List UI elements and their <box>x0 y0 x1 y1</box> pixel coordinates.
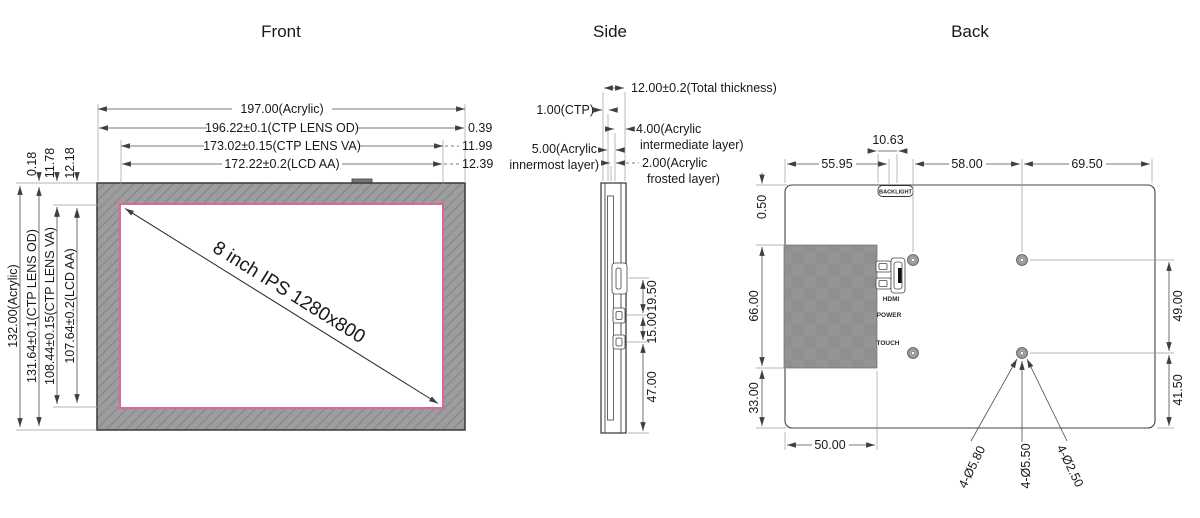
dim-innermost-line1: 5.00(Acrylic <box>532 142 597 156</box>
usb-touch-slot <box>616 338 622 346</box>
dim-width-ctp-va: 173.02±0.15(CTP LENS VA) <box>203 139 361 153</box>
dim-board-bottom: 33.00 <box>747 382 761 413</box>
inner-panel-layer <box>608 196 614 420</box>
offset-right-1: 0.39 <box>468 121 492 135</box>
back-left-dimensions: 0.50 66.00 33.00 <box>747 173 788 428</box>
back-view-title: Back <box>951 22 989 41</box>
dim-top-right: 69.50 <box>1071 157 1102 171</box>
dim-height-acrylic: 132.00(Acrylic) <box>6 264 20 347</box>
dim-height-ctp-od: 131.64±0.1(CTP LENS OD) <box>25 229 39 383</box>
offset-right-2: 11.99 <box>462 139 492 153</box>
front-left-dimensions: 132.00(Acrylic) 131.64±0.1(CTP LENS OD) … <box>6 147 77 427</box>
offset-top-3: 12.18 <box>63 147 77 178</box>
dim-frosted-line2: frosted layer) <box>647 172 720 186</box>
screw-hole-bottom-left <box>908 348 919 359</box>
dim-lip: 0.50 <box>755 195 769 219</box>
side-thickness-dimensions: 12.00±0.2(Total thickness) 1.00(CTP) 4.0… <box>509 81 776 186</box>
dim-intermediate-line2: intermediate layer) <box>640 138 744 152</box>
front-top-dimensions: 197.00(Acrylic) 196.22±0.1(CTP LENS OD) … <box>98 102 493 171</box>
front-view-title: Front <box>261 22 301 41</box>
technical-drawing-page: Front 8 inch IPS 1280x800 <box>0 0 1200 518</box>
dim-usb-bottom: 47.00 <box>645 371 659 402</box>
dim-frosted-line1: 2.00(Acrylic <box>642 156 707 170</box>
screw-hole-inner <box>1020 351 1023 354</box>
dim-top-mid: 58.00 <box>951 157 982 171</box>
screw-hole-bottom-right <box>1017 348 1028 359</box>
screw-hole-top-right <box>1017 255 1028 266</box>
back-view: Back BACKLIGHT HDMI POWER TOUCH <box>747 22 1185 490</box>
dim-hole-v1: 49.00 <box>1171 290 1185 321</box>
side-view: Side 12.00±0.2(Total thickness) 1.00(CTP… <box>509 22 776 433</box>
side-port-dimensions: 19.50 15.00 47.00 <box>627 278 659 433</box>
dim-board-width: 50.00 <box>814 438 845 452</box>
offset-right-3: 12.39 <box>462 157 493 171</box>
dim-width-lcd-aa: 172.22±0.2(LCD AA) <box>224 157 339 171</box>
dim-backlight-width: 10.63 <box>872 133 903 147</box>
port-label-power: POWER <box>877 312 902 319</box>
screw-hole-inner <box>911 351 914 354</box>
offset-top-1: 0.18 <box>25 152 39 176</box>
dim-ctp: 1.00(CTP) <box>536 103 594 117</box>
usb-power-port-slot <box>879 264 887 270</box>
dim-total-thickness: 12.00±0.2(Total thickness) <box>631 81 777 95</box>
screw-hole-inner <box>1020 258 1023 261</box>
front-view: Front 8 inch IPS 1280x800 <box>6 22 493 430</box>
driver-board <box>784 245 877 368</box>
hdmi-pin-strip <box>898 268 902 283</box>
backlight-label: BACKLIGHT <box>879 190 913 196</box>
dim-hdmi-offset: 19.50 <box>645 280 659 311</box>
dim-intermediate-line1: 4.00(Acrylic <box>636 122 701 136</box>
port-label-hdmi: HDMI <box>883 296 900 303</box>
lcd-dimension-drawing: Front 8 inch IPS 1280x800 <box>0 0 1200 518</box>
callout-mid-diameter: 4-Ø5.50 <box>1019 443 1033 488</box>
usb-power-slot <box>616 312 622 320</box>
hdmi-port-slot <box>616 268 621 289</box>
screw-hole-top-left <box>908 255 919 266</box>
dim-width-ctp-od: 196.22±0.1(CTP LENS OD) <box>205 121 359 135</box>
dim-top-left: 55.95 <box>821 157 852 171</box>
offset-top-2: 11.78 <box>43 148 57 178</box>
dim-usb-gap: 15.00 <box>645 312 659 343</box>
dim-hole-v2: 41.50 <box>1171 374 1185 405</box>
dim-board-height: 66.00 <box>747 290 761 321</box>
dim-height-ctp-va: 108.44±0.15(CTP LENS VA) <box>43 227 57 385</box>
callout-inner-diameter: 4-Ø2.50 <box>1054 443 1086 490</box>
callout-outer-diameter: 4-Ø5.80 <box>956 444 988 491</box>
screw-hole-inner <box>911 258 914 261</box>
side-view-title: Side <box>593 22 627 41</box>
usb-touch-port-slot <box>879 281 887 287</box>
dim-height-lcd-aa: 107.64±0.2(LCD AA) <box>63 248 77 363</box>
port-label-touch: TOUCH <box>877 340 900 347</box>
dim-innermost-line2: innermost layer) <box>509 158 599 172</box>
dim-width-acrylic: 197.00(Acrylic) <box>240 102 323 116</box>
